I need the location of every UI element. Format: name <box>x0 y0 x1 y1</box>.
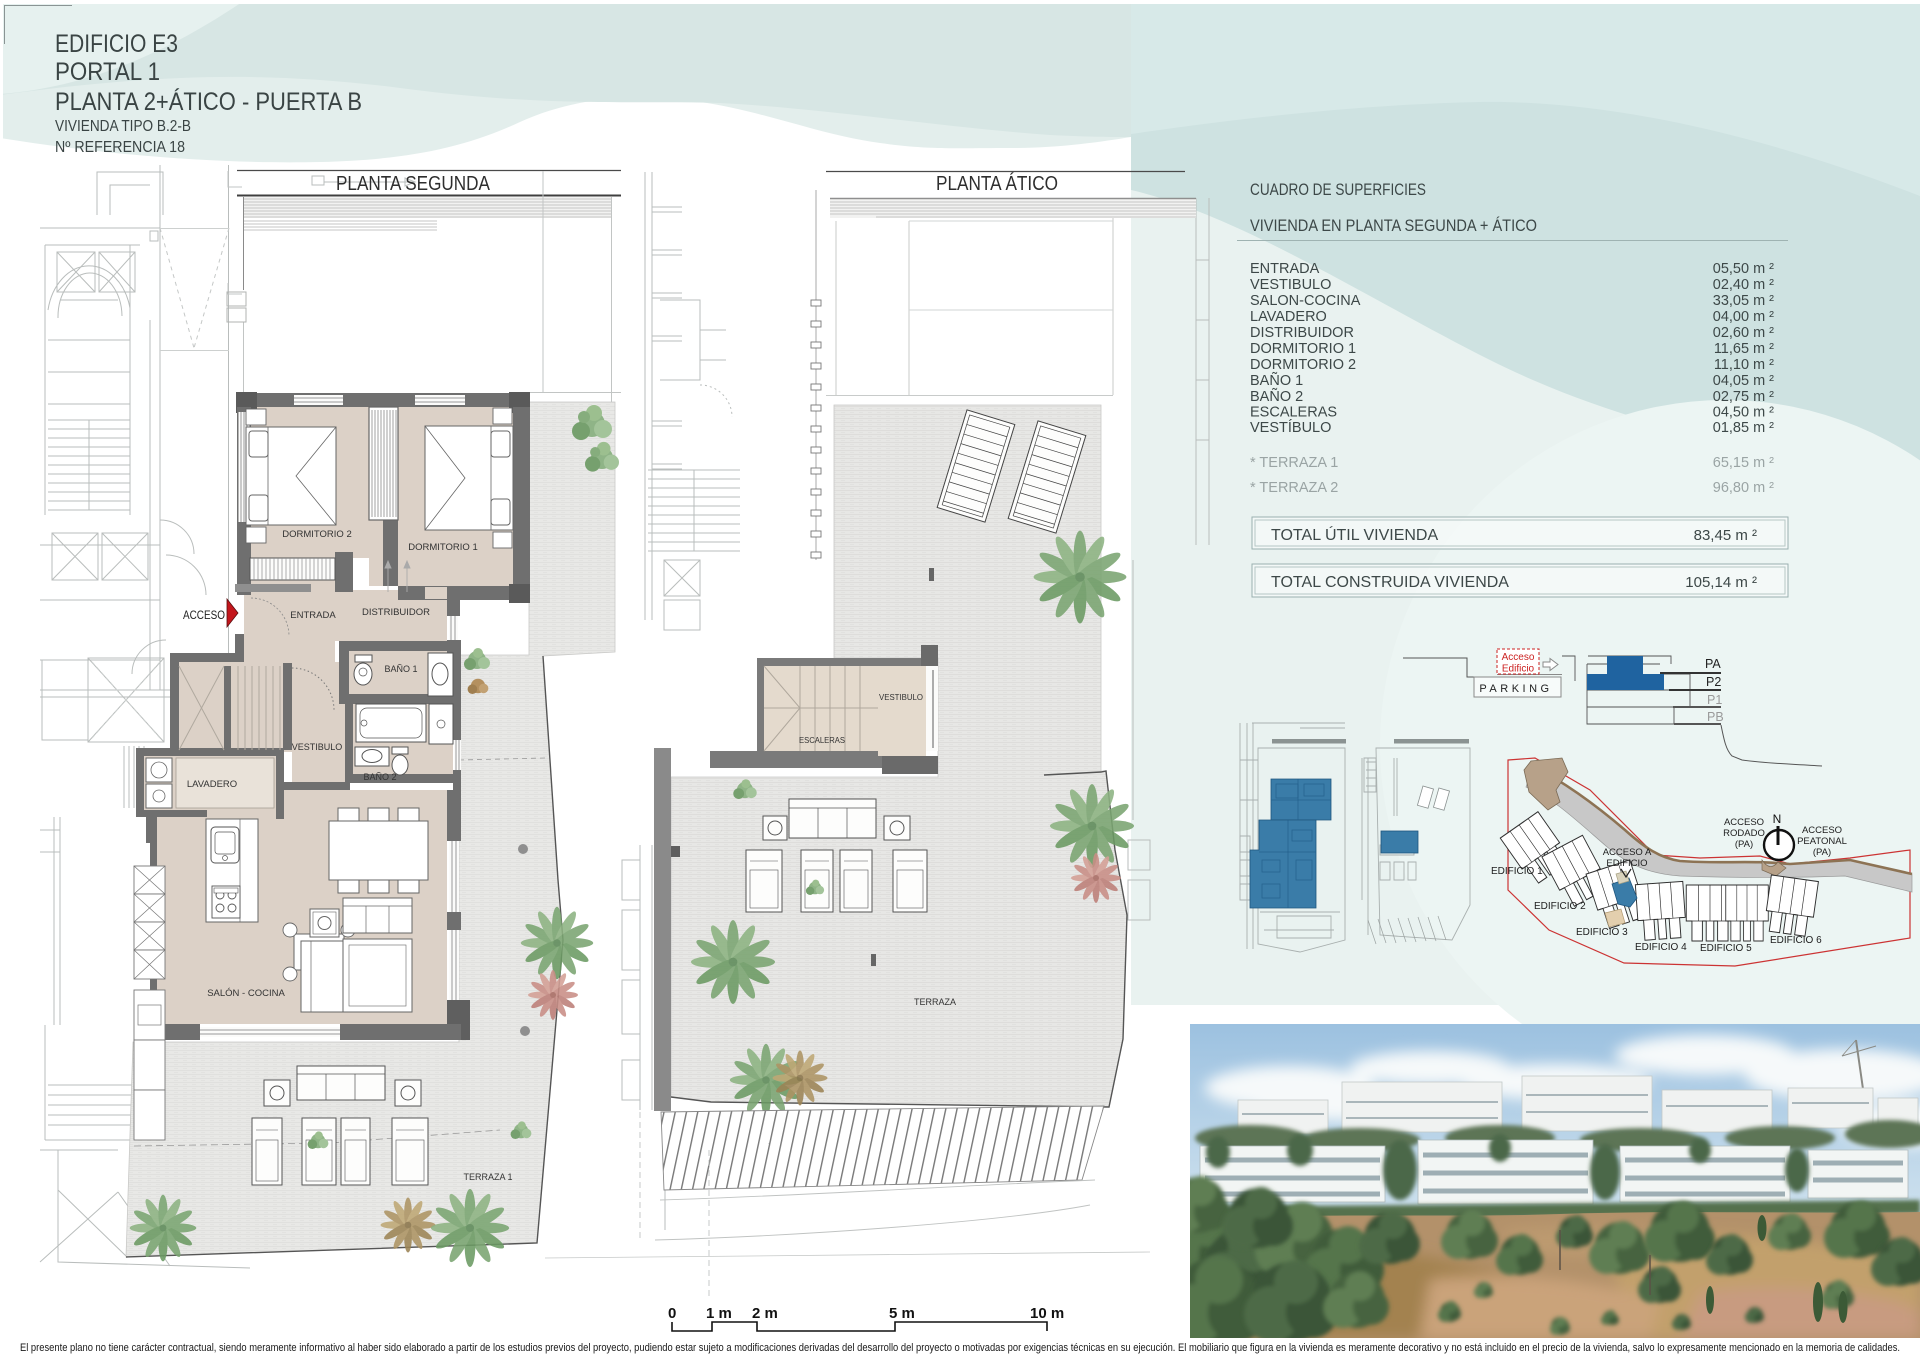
svg-text:PLANTA ÁTICO: PLANTA ÁTICO <box>936 172 1058 195</box>
svg-text:DORMITORIO 1: DORMITORIO 1 <box>1250 341 1356 357</box>
svg-text:33,05 m ²: 33,05 m ² <box>1713 293 1774 309</box>
svg-text:96,80 m ²: 96,80 m ² <box>1713 480 1774 496</box>
svg-text:VIVIENDA TIPO B.2-B: VIVIENDA TIPO B.2-B <box>55 118 191 135</box>
svg-text:EDIFICIO 6: EDIFICIO 6 <box>1770 935 1822 946</box>
svg-text:83,45 m ²: 83,45 m ² <box>1694 527 1757 544</box>
svg-text:(PA): (PA) <box>1813 847 1831 858</box>
svg-text:EDIFICIO E3: EDIFICIO E3 <box>55 30 178 58</box>
svg-text:10 m: 10 m <box>1030 1305 1064 1322</box>
svg-text:11,65 m ²: 11,65 m ² <box>1714 341 1774 357</box>
svg-text:EDIFICIO 4: EDIFICIO 4 <box>1635 942 1687 953</box>
svg-text:0: 0 <box>668 1305 676 1322</box>
svg-text:EDIFICIO 5: EDIFICIO 5 <box>1700 943 1752 954</box>
svg-text:ACCESO A: ACCESO A <box>1603 847 1652 858</box>
svg-text:EDIFICIO 1: EDIFICIO 1 <box>1491 866 1543 877</box>
svg-text:TERRAZA: TERRAZA <box>914 997 956 1007</box>
svg-text:LAVADERO: LAVADERO <box>1250 309 1327 325</box>
svg-text:VESTIBULO: VESTIBULO <box>1250 277 1331 293</box>
svg-text:Acceso: Acceso <box>1502 652 1535 663</box>
svg-text:PA: PA <box>1705 657 1721 671</box>
svg-text:PB: PB <box>1707 710 1724 724</box>
svg-text:PARKING: PARKING <box>1479 683 1552 695</box>
svg-text:DORMITORIO 2: DORMITORIO 2 <box>282 529 352 540</box>
svg-text:2 m: 2 m <box>752 1305 778 1322</box>
svg-text:TOTAL ÚTIL VIVIENDA: TOTAL ÚTIL VIVIENDA <box>1271 525 1438 544</box>
svg-text:EDIFICIO 3: EDIFICIO 3 <box>1576 927 1628 938</box>
svg-text:TERRAZA 1: TERRAZA 1 <box>463 1172 512 1182</box>
svg-text:DISTRIBUIDOR: DISTRIBUIDOR <box>362 607 430 618</box>
svg-text:ENTRADA: ENTRADA <box>290 610 336 621</box>
svg-text:BAÑO 1: BAÑO 1 <box>384 664 417 674</box>
svg-text:TOTAL CONSTRUIDA VIVIENDA: TOTAL CONSTRUIDA VIVIENDA <box>1271 574 1509 591</box>
svg-text:01,85 m ²: 01,85 m ² <box>1713 420 1774 436</box>
svg-text:VIVIENDA EN PLANTA SEGUNDA + Á: VIVIENDA EN PLANTA SEGUNDA + ÁTICO <box>1250 216 1537 235</box>
svg-text:1 m: 1 m <box>706 1305 732 1322</box>
svg-text:SALON-COCINA: SALON-COCINA <box>1250 293 1361 309</box>
svg-text:VESTIBULO: VESTIBULO <box>879 693 923 702</box>
svg-text:DORMITORIO 2: DORMITORIO 2 <box>1250 357 1356 373</box>
svg-text:PLANTA SEGUNDA: PLANTA SEGUNDA <box>336 173 491 195</box>
svg-text:VESTÍBULO: VESTÍBULO <box>1250 419 1331 436</box>
svg-text:DISTRIBUIDOR: DISTRIBUIDOR <box>1250 325 1354 341</box>
svg-text:Edificio: Edificio <box>1502 664 1535 675</box>
svg-text:Nº REFERENCIA 18: Nº REFERENCIA 18 <box>55 139 185 156</box>
svg-text:ACCESO: ACCESO <box>1724 817 1764 828</box>
svg-text:02,60 m ²: 02,60 m ² <box>1713 325 1774 341</box>
svg-text:BAÑO 1: BAÑO 1 <box>1250 372 1303 389</box>
svg-text:ACCESO: ACCESO <box>183 610 225 622</box>
svg-text:105,14 m ²: 105,14 m ² <box>1685 574 1757 591</box>
svg-text:PLANTA 2+ÁTICO - PUERTA B: PLANTA 2+ÁTICO - PUERTA B <box>55 87 362 116</box>
svg-text:ESCALERAS: ESCALERAS <box>1250 405 1337 421</box>
svg-text:5 m: 5 m <box>889 1305 915 1322</box>
svg-text:P2: P2 <box>1706 675 1721 689</box>
svg-text:SALÓN - COCINA: SALÓN - COCINA <box>207 988 285 999</box>
svg-text:DORMITORIO 1: DORMITORIO 1 <box>408 542 478 553</box>
svg-text:El presente plano no tiene car: El presente plano no tiene carácter cont… <box>20 1342 1900 1354</box>
svg-text:ESCALERAS: ESCALERAS <box>799 736 845 745</box>
svg-text:04,00 m ²: 04,00 m ² <box>1713 309 1774 325</box>
svg-text:LAVADERO: LAVADERO <box>187 779 237 790</box>
svg-text:EDIFICIO 2: EDIFICIO 2 <box>1534 901 1586 912</box>
svg-text:BAÑO 2: BAÑO 2 <box>363 772 396 782</box>
svg-text:PORTAL 1: PORTAL 1 <box>55 58 160 86</box>
svg-text:02,40 m ²: 02,40 m ² <box>1713 277 1774 293</box>
svg-text:(PA): (PA) <box>1735 839 1753 850</box>
svg-text:VESTIBULO: VESTIBULO <box>292 742 343 752</box>
svg-text:65,15 m ²: 65,15 m ² <box>1713 455 1774 471</box>
svg-text:N: N <box>1773 812 1782 826</box>
svg-text:ACCESO: ACCESO <box>1802 825 1842 836</box>
svg-text:BAÑO 2: BAÑO 2 <box>1250 388 1303 405</box>
svg-text:04,05 m ²: 04,05 m ² <box>1713 373 1774 389</box>
svg-text:CUADRO DE SUPERFICIES: CUADRO DE SUPERFICIES <box>1250 181 1426 199</box>
svg-text:* TERRAZA 1: * TERRAZA 1 <box>1250 455 1338 471</box>
svg-text:05,50 m ²: 05,50 m ² <box>1713 261 1774 277</box>
svg-text:P1: P1 <box>1707 693 1722 707</box>
svg-text:ENTRADA: ENTRADA <box>1250 261 1320 277</box>
svg-text:04,50 m ²: 04,50 m ² <box>1713 405 1774 421</box>
svg-text:PEATONAL: PEATONAL <box>1797 836 1847 847</box>
svg-text:02,75 m ²: 02,75 m ² <box>1713 389 1774 405</box>
svg-text:EDIFICIO: EDIFICIO <box>1606 858 1647 869</box>
svg-text:11,10 m ²: 11,10 m ² <box>1714 357 1774 373</box>
svg-text:RODADO: RODADO <box>1723 828 1765 839</box>
svg-text:* TERRAZA 2: * TERRAZA 2 <box>1250 480 1338 496</box>
